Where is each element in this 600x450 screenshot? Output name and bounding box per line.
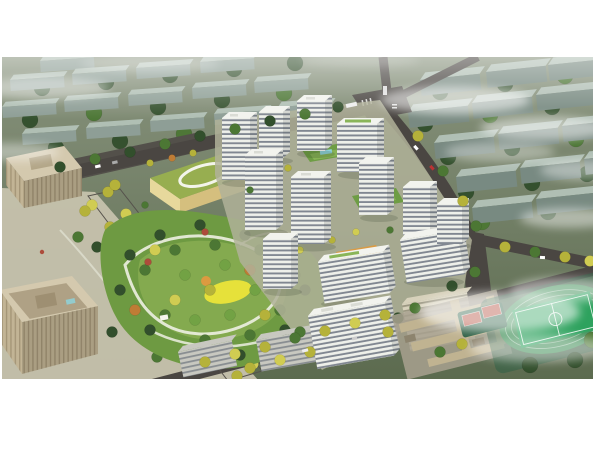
aerial-rendering: aerial-architectural-rendering [0,0,600,450]
tower [263,233,298,289]
car [540,256,545,259]
tower [403,181,437,235]
tower [359,157,394,215]
screenshot-canvas: aerial-architectural-rendering [0,0,600,450]
